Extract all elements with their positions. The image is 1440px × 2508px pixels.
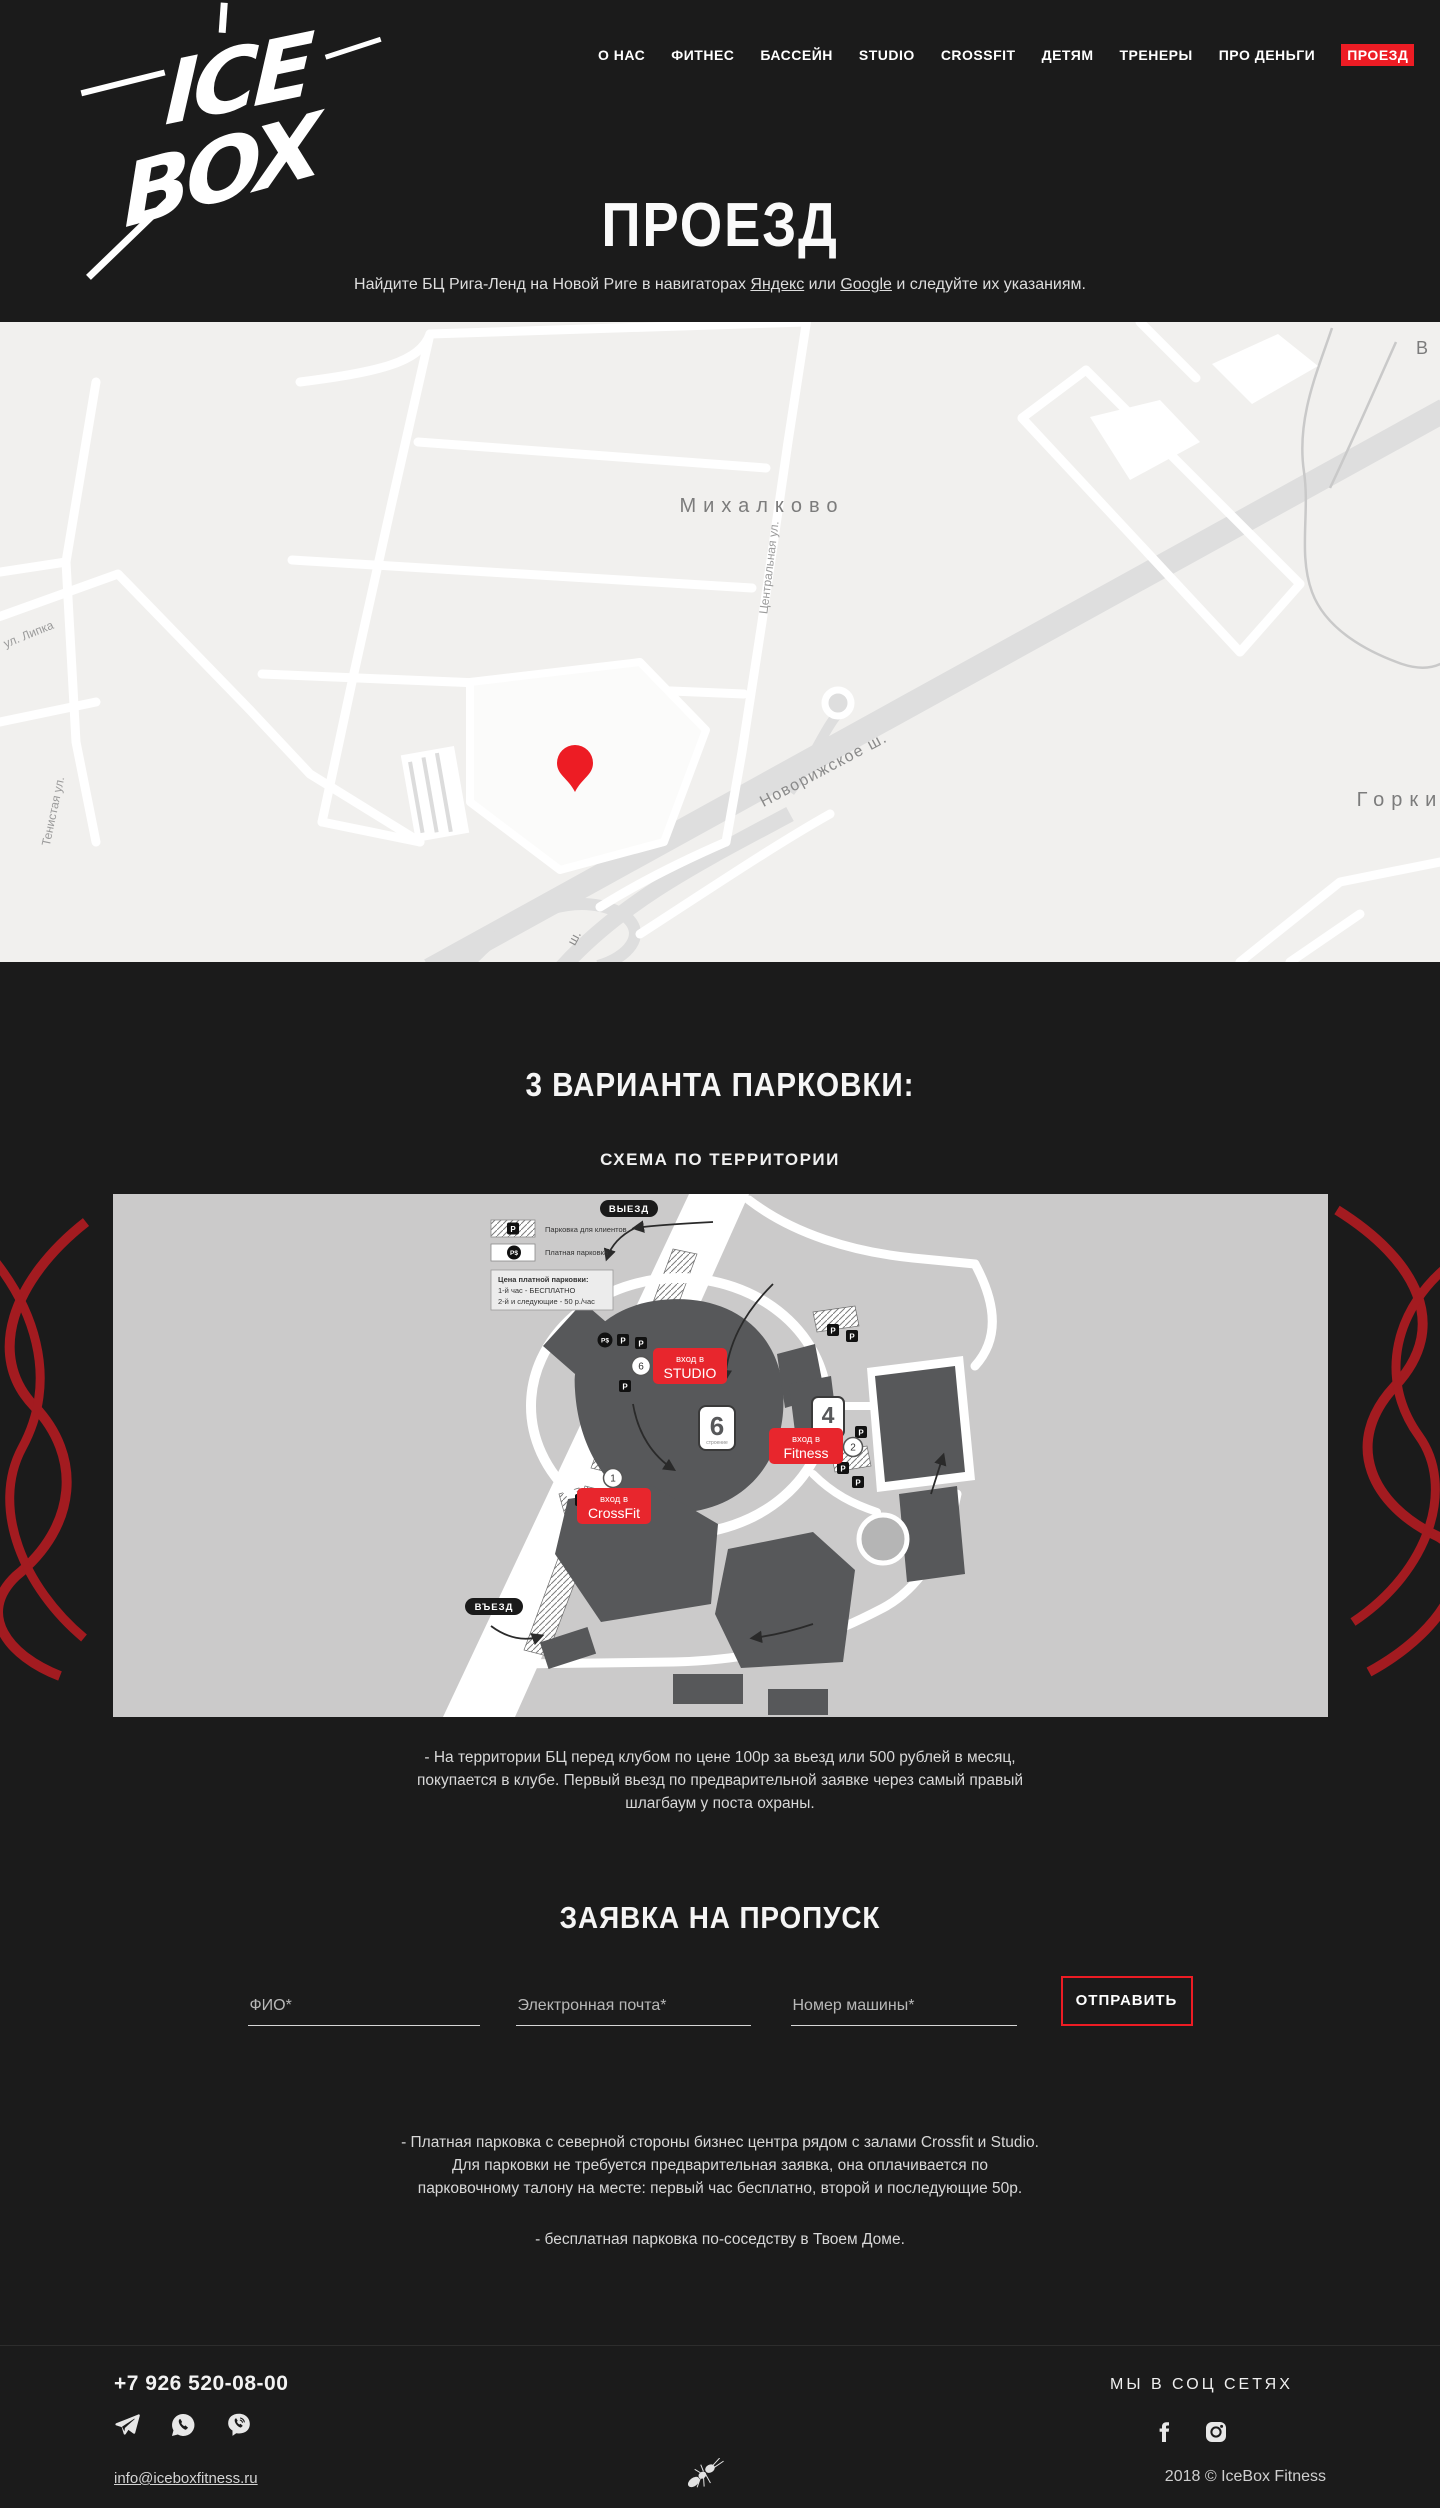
social-block: МЫ В СОЦ СЕТЯХ — [1110, 2376, 1270, 2444]
crossfit-line1: вход в — [600, 1494, 628, 1505]
scheme-canvas: ВЫЕЗД ВЪЕЗД P Парковка для клиентов P$ П… — [113, 1194, 1328, 1717]
crossfit-number: 1 — [610, 1474, 616, 1485]
nav-item-pool[interactable]: БАССЕЙН — [760, 47, 833, 63]
studio-number: 6 — [638, 1362, 644, 1373]
fitness-number: 2 — [850, 1443, 856, 1454]
social-heading: МЫ В СОЦ СЕТЯХ — [1110, 2376, 1270, 2394]
b4-number: 4 — [821, 1402, 834, 1428]
parking-heading: 3 ВАРИАНТА ПАРКОВКИ: — [72, 962, 1368, 1104]
subtitle-text: Найдите БЦ Рига-Ленд на Новой Риге в нав… — [354, 276, 750, 293]
b6-caption: строение — [706, 1440, 728, 1446]
location-map[interactable]: Михалково Центральная ул. Новорижское ш.… — [0, 322, 1440, 962]
p-icon: P — [840, 1465, 846, 1474]
logo-stroke — [219, 3, 228, 33]
scheme-heading: СХЕМА ПО ТЕРРИТОРИИ — [0, 1150, 1440, 1170]
fitness-line1: вход в — [792, 1434, 820, 1445]
p-icon: P — [620, 1337, 626, 1346]
instagram-icon[interactable] — [1204, 2420, 1228, 2444]
red-squiggle-left-decoration — [0, 1208, 89, 1688]
submit-button[interactable]: ОТПРАВИТЬ — [1061, 1976, 1193, 2026]
fitness-line2: Fitness — [783, 1445, 828, 1461]
facebook-icon[interactable] — [1152, 2420, 1176, 2444]
copyright-text: 2018 © IceBox Fitness — [1165, 2468, 1326, 2486]
main-nav: О НАС ФИТНЕС БАССЕЙН STUDIO CROSSFIT ДЕТ… — [598, 44, 1414, 66]
nav-item-trainers[interactable]: ТРЕНЕРЫ — [1120, 47, 1193, 63]
email-field[interactable] — [516, 1991, 751, 2026]
map-label-gorki: Горки — [1357, 789, 1440, 811]
nav-item-kids[interactable]: ДЕТЯМ — [1042, 47, 1094, 63]
map-label-edge: В — [1416, 338, 1432, 358]
whatsapp-icon[interactable] — [170, 2412, 196, 2438]
p-icon: P — [622, 1383, 628, 1392]
header: ICE BOX О НАС ФИТНЕС БАССЕЙН STUDIO CROS… — [0, 0, 1440, 322]
b6-number: 6 — [709, 1411, 723, 1441]
studio-line1: вход в — [676, 1354, 704, 1365]
legend-price-line1: 1-й час - БЕСПЛАТНО — [498, 1286, 576, 1295]
nav-item-crossfit[interactable]: CROSSFIT — [941, 47, 1016, 63]
telegram-icon[interactable] — [114, 2412, 140, 2438]
page: ICE BOX О НАС ФИТНЕС БАССЕЙН STUDIO CROS… — [0, 0, 1440, 2508]
yandex-link[interactable]: Яндекс — [750, 276, 804, 293]
legend-price-line2: 2-й и следующие - 50 р./час — [498, 1297, 595, 1306]
nav-item-fitness[interactable]: ФИТНЕС — [671, 47, 734, 63]
legend-paid-text: Платная парковка — [545, 1248, 609, 1257]
parking-note-2: - Платная парковка с северной стороны би… — [400, 2132, 1040, 2201]
p-icon: P — [849, 1333, 855, 1342]
pass-form: ОТПРАВИТЬ — [0, 1976, 1440, 2026]
phone-number[interactable]: +7 926 520-08-00 — [114, 2372, 288, 2396]
logo-stroke — [325, 37, 382, 60]
nav-item-studio[interactable]: STUDIO — [859, 47, 915, 63]
entry-text: ВЪЕЗД — [474, 1602, 513, 1613]
parking-note-1: - На территории БЦ перед клубом по цене … — [400, 1747, 1040, 1816]
name-field[interactable] — [248, 1991, 480, 2026]
page-subtitle: Найдите БЦ Рига-Ленд на Новой Риге в нав… — [0, 276, 1440, 294]
crossfit-line2: CrossFit — [587, 1505, 639, 1521]
p-icon: P — [638, 1340, 644, 1349]
p-icon: P — [858, 1429, 864, 1438]
footer: +7 926 520-08-00 info@iceboxfitness.ru М… — [0, 2345, 1440, 2508]
viber-icon[interactable] — [226, 2412, 252, 2438]
map-label-town: Михалково — [679, 495, 844, 517]
pass-form-heading: ЗАЯВКА НА ПРОПУСК — [72, 1900, 1368, 1936]
p-icon: P — [830, 1327, 836, 1336]
scheme-entry-label: ВЪЕЗД — [465, 1598, 523, 1615]
scheme-building-6-plate: 6 строение — [699, 1406, 735, 1450]
ant-icon — [680, 2458, 738, 2488]
subtitle-text: или — [804, 276, 840, 293]
messenger-icons — [114, 2412, 252, 2438]
p-icon: P — [855, 1479, 861, 1488]
nav-item-directions[interactable]: ПРОЕЗД — [1341, 44, 1414, 66]
map-canvas: Михалково Центральная ул. Новорижское ш.… — [0, 322, 1440, 962]
territory-scheme-image: ВЫЕЗД ВЪЕЗД P Парковка для клиентов P$ П… — [113, 1194, 1328, 1717]
parking-note-3: - бесплатная парковка по-соседству в Тво… — [400, 2229, 1040, 2252]
studio-line2: STUDIO — [663, 1365, 716, 1381]
red-squiggle-right-decoration — [1333, 1202, 1440, 1687]
email-link[interactable]: info@iceboxfitness.ru — [114, 2470, 258, 2487]
nav-item-about[interactable]: О НАС — [598, 47, 645, 63]
scheme-exit-label: ВЫЕЗД — [600, 1200, 658, 1217]
legend-p-icon: P — [510, 1225, 516, 1234]
social-icons — [1110, 2420, 1270, 2444]
parking-section: 3 ВАРИАНТА ПАРКОВКИ: СХЕМА ПО ТЕРРИТОРИИ — [0, 962, 1440, 2345]
google-link[interactable]: Google — [840, 276, 892, 293]
car-number-field[interactable] — [791, 1991, 1017, 2026]
legend-ppaid-icon: P$ — [510, 1250, 518, 1257]
subtitle-text: и следуйте их указаниям. — [892, 276, 1086, 293]
legend-price-title: Цена платной парковки: — [498, 1275, 588, 1284]
ppaid-icon: P$ — [597, 1333, 612, 1348]
legend-client-text: Парковка для клиентов — [545, 1225, 627, 1234]
exit-text: ВЫЕЗД — [608, 1204, 648, 1215]
nav-item-money[interactable]: ПРО ДЕНЬГИ — [1219, 47, 1315, 63]
ppaid-text: P$ — [601, 1338, 609, 1345]
logo-stroke — [81, 70, 166, 97]
page-title: ПРОЕЗД — [86, 190, 1353, 261]
